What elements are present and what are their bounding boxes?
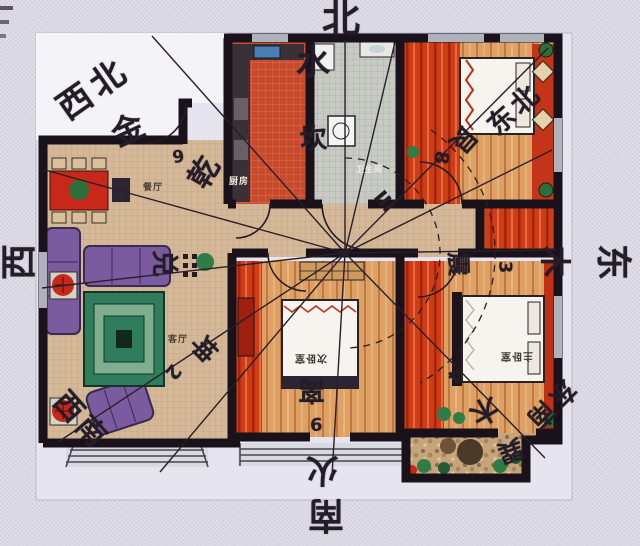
trigram-kan-label: 坎 xyxy=(299,125,328,154)
luoshu-3-label: 3 xyxy=(495,261,513,274)
photo-corner-artifact xyxy=(0,0,26,46)
room-label-dining: 餐厅 xyxy=(143,184,163,193)
compass-south-label: 南 xyxy=(308,496,344,532)
compass-east-label: 东 xyxy=(594,244,630,280)
trigram-dui-label: 兑 xyxy=(150,250,177,277)
room-label-kitchen: 厨房 xyxy=(229,178,249,187)
compass-north-label: 北 xyxy=(322,0,360,38)
master-red-strip xyxy=(404,261,444,433)
trigram-li-label: 离 xyxy=(298,376,325,403)
room-label-secondary-bedroom: 次卧室 xyxy=(294,352,327,362)
compass-west-label: 西 xyxy=(2,244,38,280)
element-fire-label: 火 xyxy=(306,454,339,487)
element-wood-east-label: 木 xyxy=(538,246,569,277)
room-label-master-bedroom: 主卧室 xyxy=(500,350,533,360)
room-label-bathroom: 卫生间 xyxy=(356,166,383,174)
trigram-zhen-label: 震 xyxy=(446,252,471,277)
luoshu-9-label: 9 xyxy=(310,414,323,432)
element-water-label: 水 xyxy=(296,46,330,80)
bedroom1-red-strip xyxy=(404,42,460,204)
